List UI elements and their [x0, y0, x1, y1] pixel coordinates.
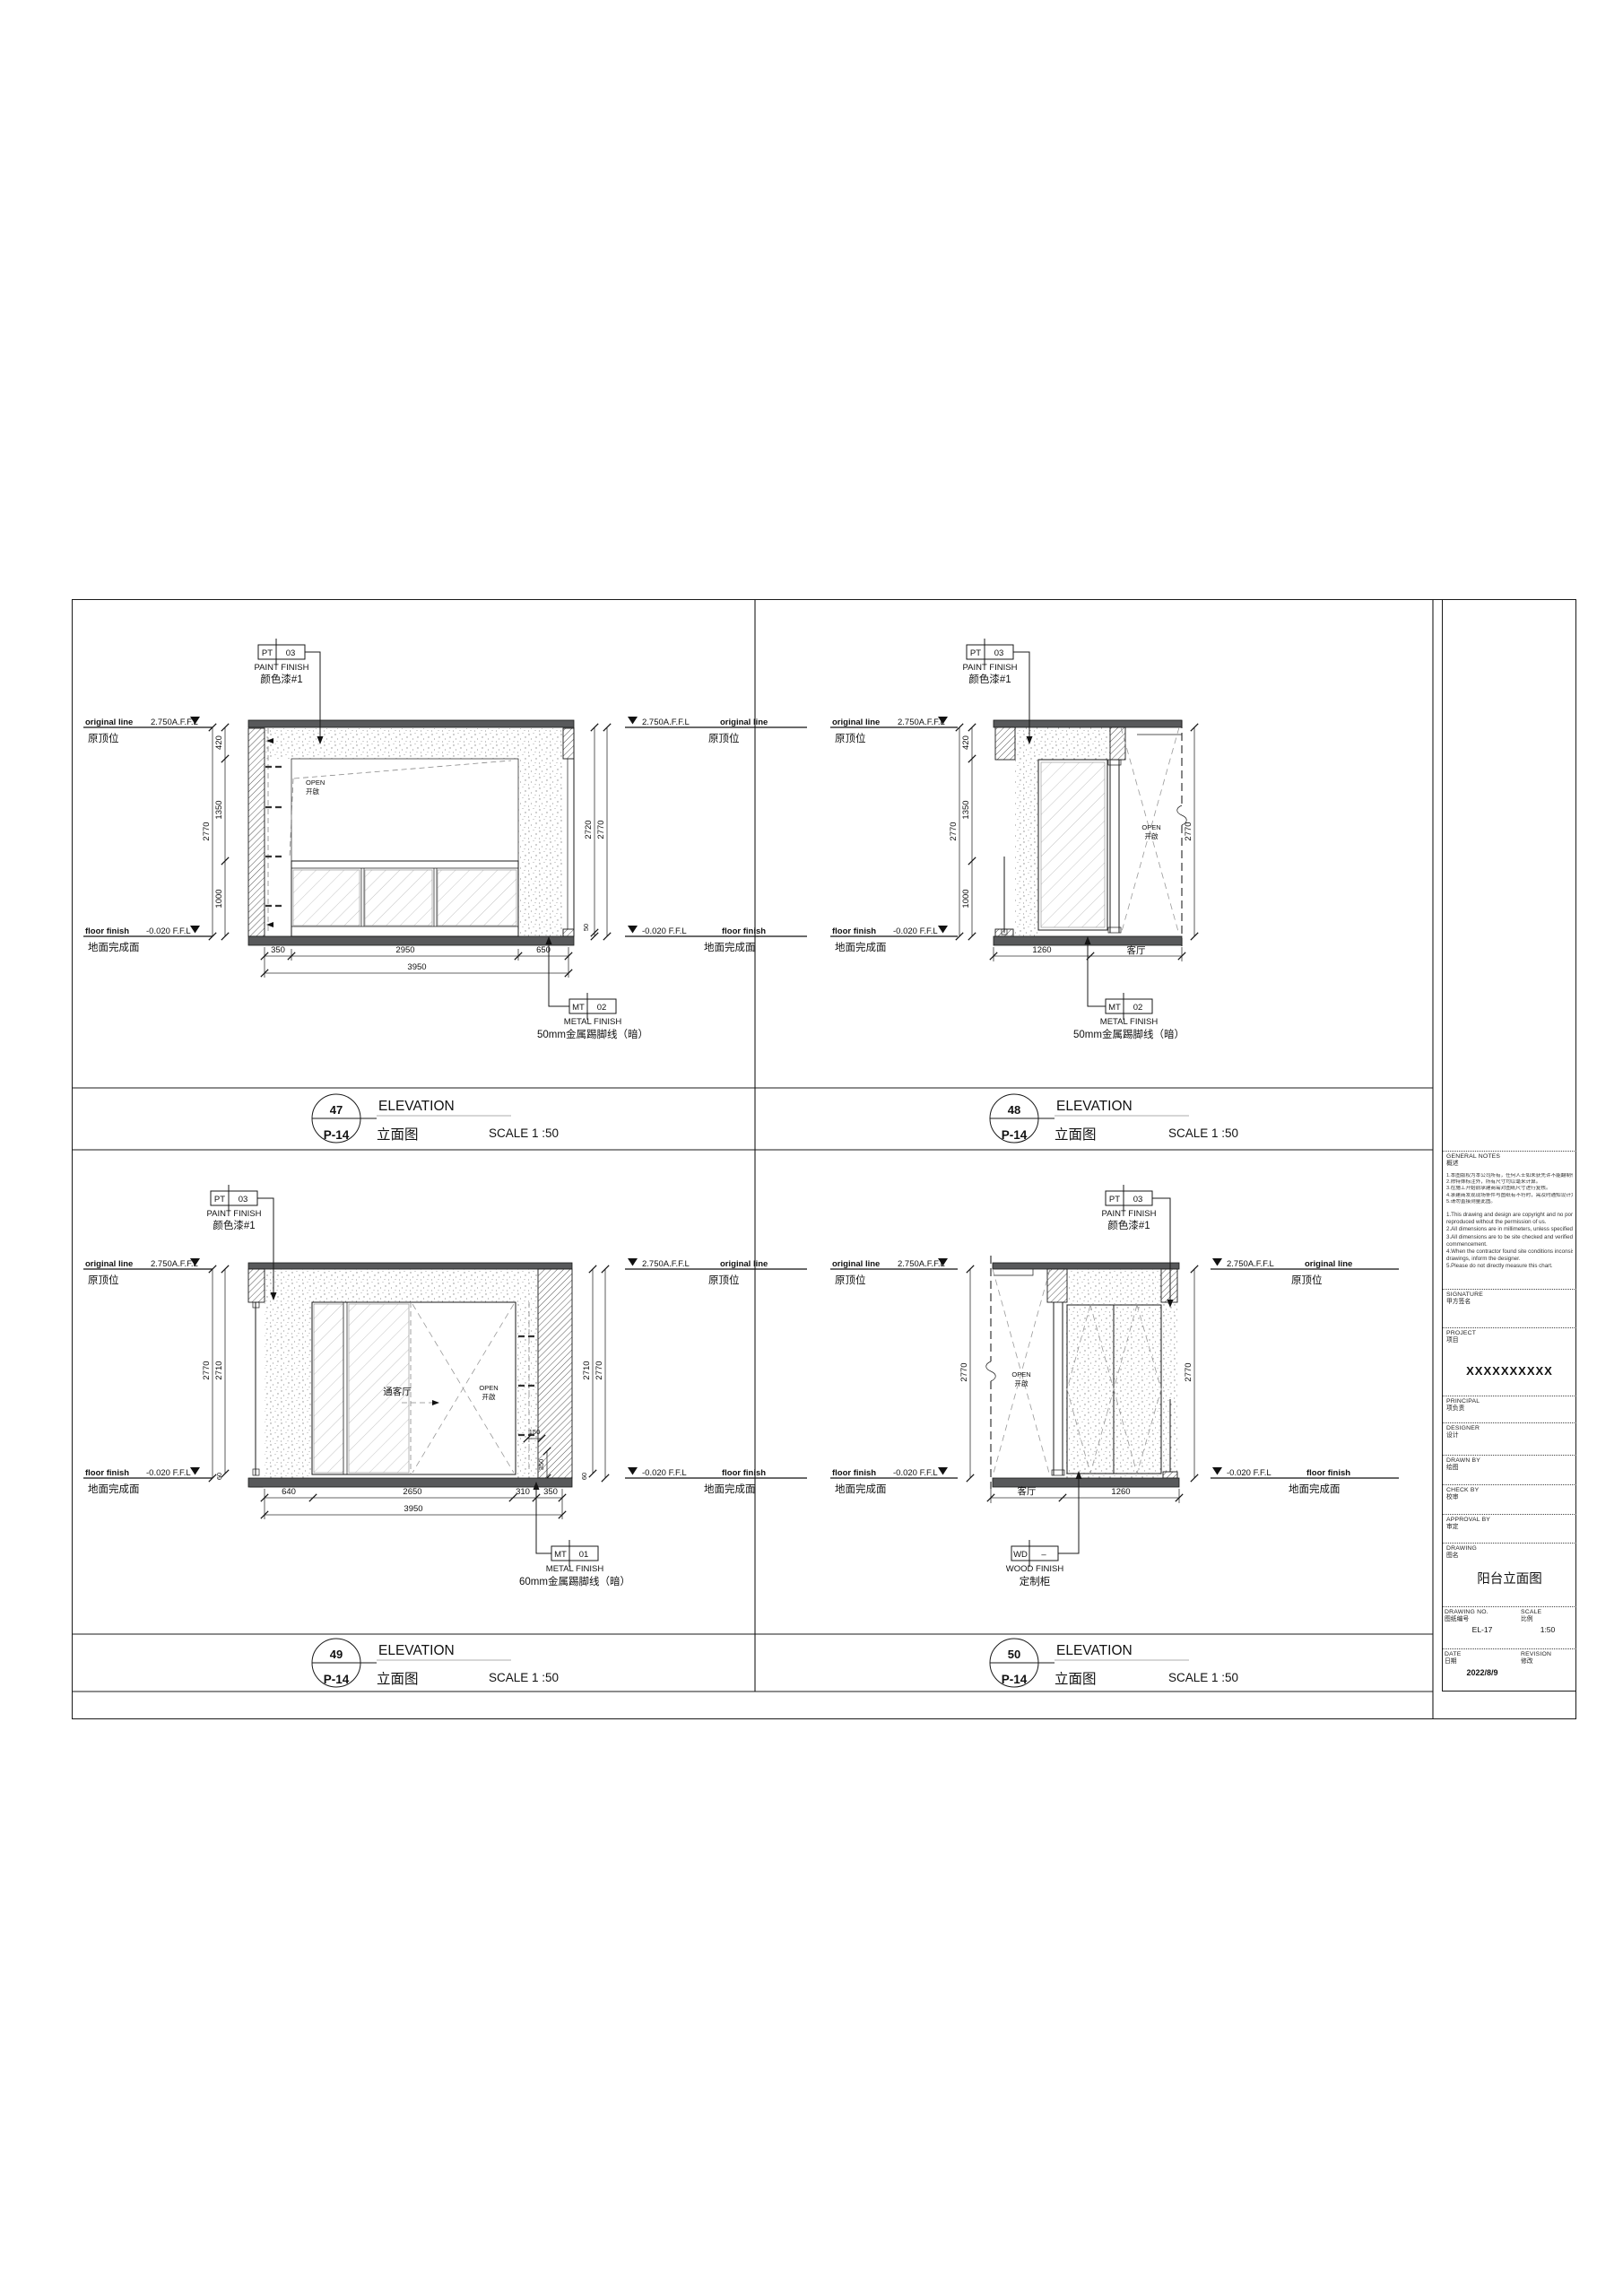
- svg-text:floor finish: floor finish: [1306, 1468, 1350, 1478]
- open-label-en: OPEN: [306, 778, 325, 787]
- svg-text:01: 01: [579, 1550, 589, 1560]
- svg-text:2710: 2710: [214, 1361, 224, 1379]
- svg-text:METAL FINISH: METAL FINISH: [564, 1017, 622, 1027]
- svg-text:original line: original line: [85, 1259, 133, 1269]
- scale-value: 1:50: [1521, 1625, 1575, 1634]
- e47-level-left: original line 2.750A.F.F.L 原顶位 floor fin…: [83, 717, 213, 953]
- svg-text:floor finish: floor finish: [832, 926, 876, 936]
- svg-text:地面完成面: 地面完成面: [1289, 1483, 1341, 1495]
- elevation-50: OPEN 开啟 PT 03 PAINT FINISH 颜色漆#1: [830, 1185, 1399, 1587]
- svg-text:ELEVATION: ELEVATION: [378, 1643, 455, 1658]
- svg-text:原顶位: 原顶位: [708, 1274, 740, 1286]
- svg-text:2770: 2770: [1184, 822, 1193, 840]
- svg-text:SCALE 1 :50: SCALE 1 :50: [489, 1126, 559, 1140]
- principal-section: PRINCIPAL 项负责: [1443, 1396, 1576, 1422]
- svg-text:PT: PT: [214, 1195, 225, 1205]
- svg-text:地面完成面: 地面完成面: [88, 941, 140, 953]
- tag-name-en: PAINT FINISH: [255, 663, 309, 673]
- titlebar-49: 49 P-14 ELEVATION 立面图 SCALE 1 :50: [312, 1639, 559, 1687]
- svg-text:P-14: P-14: [324, 1673, 350, 1686]
- titlebar-47: 47 P-14 ELEVATION 立面图 SCALE 1 :50: [312, 1094, 559, 1143]
- svg-text:2710: 2710: [582, 1361, 592, 1379]
- svg-text:立面图: 立面图: [377, 1126, 419, 1143]
- tag-name-cn: 颜色漆#1: [260, 673, 302, 685]
- svg-text:–: –: [1041, 1550, 1046, 1560]
- svg-text:PT: PT: [970, 648, 981, 658]
- titlebar-50: 50 P-14 ELEVATION 立面图 SCALE 1 :50: [990, 1639, 1238, 1687]
- tag-mt02-e47: MT 02 METAL FINISH 50mm金属踢脚线（暗）: [537, 936, 648, 1040]
- svg-text:SCALE 1 :50: SCALE 1 :50: [1168, 1126, 1238, 1140]
- svg-text:开啟: 开啟: [1015, 1378, 1029, 1387]
- svg-text:开啟: 开啟: [1145, 831, 1159, 840]
- svg-text:420: 420: [961, 735, 971, 750]
- svg-text:SCALE 1 :50: SCALE 1 :50: [1168, 1671, 1238, 1684]
- svg-text:颜色漆#1: 颜色漆#1: [1107, 1219, 1150, 1231]
- drawing-title: 阳台立面图: [1443, 1569, 1576, 1587]
- elevation-47: OPEN 开啟 PT 03 PAINT FINISH 颜色漆#1: [83, 639, 807, 1040]
- svg-text:WD: WD: [1013, 1550, 1028, 1560]
- svg-text:02: 02: [597, 1003, 607, 1013]
- e47-dims-right: 2720 50 2770 2.750A.F.F.L original line …: [582, 717, 807, 953]
- svg-text:3950: 3950: [404, 1504, 422, 1514]
- svg-text:1000: 1000: [961, 889, 971, 908]
- svg-text:640: 640: [282, 1487, 296, 1497]
- svg-text:-0.020 F.F.L: -0.020 F.F.L: [893, 1468, 938, 1478]
- svg-text:2.750A.F.F.L: 2.750A.F.F.L: [1227, 1259, 1274, 1269]
- elevation-48: OPEN 开啟 PT 03 PAINT FINISH 颜色漆#1 origina…: [830, 639, 1198, 1040]
- svg-text:定制柜: 定制柜: [1020, 1575, 1051, 1587]
- svg-text:2770: 2770: [1184, 1362, 1193, 1381]
- svg-text:1260: 1260: [1032, 945, 1051, 955]
- svg-text:1350: 1350: [214, 800, 224, 819]
- project-section: PROJECT 项目 XXXXXXXXXX: [1443, 1327, 1576, 1396]
- svg-text:50: 50: [582, 924, 590, 931]
- sheet-ref: P-14: [324, 1128, 350, 1142]
- svg-text:MT: MT: [572, 1003, 585, 1013]
- svg-text:48: 48: [1008, 1103, 1020, 1117]
- cad-sheet-page: OPEN 开啟 PT 03 PAINT FINISH 颜色漆#1: [0, 0, 1623, 2296]
- drawn-by-section: DRAWN BY 绘图: [1443, 1455, 1576, 1484]
- svg-text:2.750A.F.F.L: 2.750A.F.F.L: [151, 717, 198, 727]
- general-notes-section: GENERAL NOTES 概述 1.本图版权为本公司所有，任何人士如未获先许不…: [1443, 1151, 1576, 1289]
- svg-text:ELEVATION: ELEVATION: [1056, 1643, 1133, 1658]
- svg-text:03: 03: [994, 648, 1004, 658]
- svg-text:2770: 2770: [595, 1361, 604, 1379]
- svg-text:60mm金属踢脚线（暗）: 60mm金属踢脚线（暗）: [519, 1575, 630, 1587]
- signature-section: SIGNATURE 甲方签名: [1443, 1289, 1576, 1327]
- svg-text:2770: 2770: [959, 1362, 969, 1381]
- elevation-49: OPEN 开啟 通客厅 150 350 PT 03 PAINT FINISH 颜: [83, 1185, 807, 1587]
- svg-text:50: 50: [1008, 1648, 1020, 1661]
- svg-text:02: 02: [1133, 1003, 1143, 1013]
- view-number: 47: [330, 1103, 343, 1117]
- svg-text:floor finish: floor finish: [832, 1468, 876, 1478]
- drawing-area: OPEN 开啟 PT 03 PAINT FINISH 颜色漆#1: [72, 599, 1435, 1719]
- svg-text:地面完成面: 地面完成面: [704, 941, 756, 953]
- svg-text:-0.020 F.F.L: -0.020 F.F.L: [893, 926, 938, 936]
- svg-text:原顶位: 原顶位: [88, 1274, 119, 1286]
- svg-text:2.750A.F.F.L: 2.750A.F.F.L: [898, 1259, 945, 1269]
- svg-text:地面完成面: 地面完成面: [835, 1483, 887, 1495]
- svg-text:PAINT FINISH: PAINT FINISH: [1102, 1209, 1157, 1219]
- svg-text:2770: 2770: [202, 822, 212, 840]
- svg-text:PT: PT: [1109, 1195, 1120, 1205]
- svg-text:310: 310: [516, 1487, 530, 1497]
- e49-levels-right: 2710 60 2770 2.750A.F.F.L original line …: [580, 1258, 807, 1495]
- svg-text:MT: MT: [554, 1550, 567, 1560]
- svg-text:原顶位: 原顶位: [835, 1274, 866, 1286]
- svg-text:-0.020 F.F.L: -0.020 F.F.L: [1227, 1468, 1271, 1478]
- svg-text:original line: original line: [85, 717, 133, 727]
- svg-text:2.750A.F.F.L: 2.750A.F.F.L: [151, 1259, 198, 1269]
- svg-text:MT: MT: [1108, 1003, 1121, 1013]
- svg-text:1350: 1350: [961, 800, 971, 819]
- svg-text:floor finish: floor finish: [722, 926, 766, 936]
- drawing-name-section: DRAWING 图名 阳台立面图: [1443, 1543, 1576, 1606]
- svg-text:2.750A.F.F.L: 2.750A.F.F.L: [642, 717, 690, 727]
- svg-text:SCALE 1 :50: SCALE 1 :50: [489, 1671, 559, 1684]
- svg-text:-0.020 F.F.L: -0.020 F.F.L: [146, 926, 191, 936]
- svg-text:-0.020 F.F.L: -0.020 F.F.L: [642, 1468, 687, 1478]
- e48-dim-right: 2770: [1184, 724, 1198, 940]
- date-value: 2022/8/9: [1445, 1668, 1520, 1677]
- svg-text:150: 150: [529, 1428, 541, 1436]
- tag-mt01-e49: MT 01 METAL FINISH 60mm金属踢脚线（暗）: [519, 1482, 630, 1587]
- svg-text:60: 60: [580, 1473, 588, 1480]
- titlebar-48: 48 P-14 ELEVATION 立面图 SCALE 1 :50: [990, 1094, 1238, 1143]
- open-label-cn: 开啟: [306, 787, 319, 796]
- svg-text:P-14: P-14: [1002, 1128, 1028, 1142]
- svg-text:WOOD FINISH: WOOD FINISH: [1006, 1564, 1064, 1574]
- svg-text:地面完成面: 地面完成面: [835, 941, 887, 953]
- svg-text:original line: original line: [720, 1259, 768, 1269]
- svg-text:客厅: 客厅: [1018, 1485, 1037, 1497]
- svg-text:-0.020 F.F.L: -0.020 F.F.L: [642, 926, 687, 936]
- svg-text:原顶位: 原顶位: [835, 732, 866, 744]
- svg-text:地面完成面: 地面完成面: [704, 1483, 756, 1495]
- svg-text:OPEN: OPEN: [1011, 1370, 1030, 1378]
- svg-text:floor finish: floor finish: [85, 926, 129, 936]
- svg-text:P-14: P-14: [1002, 1673, 1028, 1686]
- check-by-section: CHECK BY 校审: [1443, 1484, 1576, 1514]
- svg-text:2770: 2770: [202, 1361, 212, 1379]
- svg-text:立面图: 立面图: [1055, 1671, 1097, 1687]
- svg-text:original line: original line: [720, 717, 768, 727]
- svg-text:2650: 2650: [403, 1487, 421, 1497]
- svg-text:METAL FINISH: METAL FINISH: [1100, 1017, 1159, 1027]
- svg-text:ELEVATION: ELEVATION: [1056, 1099, 1133, 1114]
- svg-text:350: 350: [537, 1459, 545, 1471]
- svg-text:floor finish: floor finish: [85, 1468, 129, 1478]
- svg-text:PAINT FINISH: PAINT FINISH: [963, 663, 1018, 673]
- svg-text:METAL FINISH: METAL FINISH: [546, 1564, 604, 1574]
- svg-text:开啟: 开啟: [482, 1392, 496, 1401]
- svg-text:通客厅: 通客厅: [383, 1386, 412, 1397]
- svg-text:2770: 2770: [949, 822, 959, 840]
- e47-dims-bottom: 350 2950 650 3950: [261, 945, 572, 978]
- tag-code: PT: [262, 648, 273, 658]
- drawing-no-section: DRAWING NO. 图纸编号 EL-17 SCALE 比例 1:50: [1443, 1606, 1576, 1648]
- svg-text:350: 350: [271, 945, 285, 955]
- svg-text:original line: original line: [1305, 1259, 1352, 1269]
- svg-text:420: 420: [214, 735, 224, 750]
- svg-text:2950: 2950: [395, 945, 414, 955]
- svg-text:原顶位: 原顶位: [88, 732, 119, 744]
- svg-text:PAINT FINISH: PAINT FINISH: [207, 1209, 262, 1219]
- e50-dims-bottom: 客厅 1260: [987, 1485, 1183, 1503]
- svg-text:350: 350: [543, 1487, 558, 1497]
- project-value: XXXXXXXXXX: [1443, 1364, 1576, 1378]
- svg-text:60: 60: [215, 1473, 223, 1480]
- e49-dims-bottom: 640 2650 310 350 3950: [261, 1487, 566, 1519]
- tag-num: 03: [286, 648, 296, 658]
- svg-text:50mm金属踢脚线（暗）: 50mm金属踢脚线（暗）: [1073, 1028, 1185, 1040]
- svg-text:03: 03: [239, 1195, 248, 1205]
- title-block: GENERAL NOTES 概述 1.本图版权为本公司所有，任何人士如未获先许不…: [1442, 599, 1576, 1692]
- svg-text:客厅: 客厅: [1127, 944, 1146, 956]
- svg-text:2.750A.F.F.L: 2.750A.F.F.L: [642, 1259, 690, 1269]
- svg-text:1000: 1000: [214, 889, 224, 908]
- e50-levels-left: original line 2.750A.F.F.L 原顶位 floor fin…: [830, 1258, 974, 1495]
- e48-levels-left: original line 2.750A.F.F.L 原顶位 floor fin…: [830, 717, 976, 953]
- svg-text:立面图: 立面图: [377, 1671, 419, 1687]
- approval-by-section: APPROVAL BY 审定: [1443, 1514, 1576, 1543]
- svg-text:50mm金属踢脚线（暗）: 50mm金属踢脚线（暗）: [537, 1028, 648, 1040]
- svg-text:颜色漆#1: 颜色漆#1: [968, 673, 1011, 685]
- svg-text:OPEN: OPEN: [479, 1384, 498, 1392]
- svg-text:original line: original line: [832, 717, 880, 727]
- drawing-no-value: EL-17: [1445, 1625, 1520, 1634]
- svg-text:03: 03: [1133, 1195, 1143, 1205]
- svg-text:2.750A.F.F.L: 2.750A.F.F.L: [898, 717, 945, 727]
- svg-text:颜色漆#1: 颜色漆#1: [213, 1219, 255, 1231]
- svg-text:1260: 1260: [1111, 1487, 1130, 1497]
- e50-levels-right: 2770 2.750A.F.F.L original line 原顶位 -0.0…: [1184, 1258, 1399, 1495]
- date-section: DATE 日期 2022/8/9 REVISION 修改: [1443, 1648, 1576, 1691]
- svg-text:3950: 3950: [407, 962, 426, 972]
- svg-text:OPEN: OPEN: [1141, 823, 1160, 831]
- svg-text:立面图: 立面图: [1055, 1126, 1097, 1143]
- svg-text:ELEVATION: ELEVATION: [378, 1099, 455, 1114]
- svg-text:2720: 2720: [584, 820, 594, 839]
- svg-text:original line: original line: [832, 1259, 880, 1269]
- svg-text:2770: 2770: [596, 820, 606, 839]
- e47-dims-left: 2770 420 1350 1000: [202, 724, 229, 940]
- svg-text:地面完成面: 地面完成面: [88, 1483, 140, 1495]
- svg-text:-0.020 F.F.L: -0.020 F.F.L: [146, 1468, 191, 1478]
- svg-text:49: 49: [330, 1648, 343, 1661]
- general-notes-label: GENERAL NOTES: [1446, 1153, 1573, 1161]
- e49-levels-left: original line 2.750A.F.F.L 原顶位 floor fin…: [83, 1258, 229, 1495]
- svg-text:floor finish: floor finish: [722, 1468, 766, 1478]
- svg-text:原顶位: 原顶位: [1291, 1274, 1323, 1286]
- svg-text:原顶位: 原顶位: [708, 732, 740, 744]
- designer-section: DESIGNER 设计: [1443, 1422, 1576, 1455]
